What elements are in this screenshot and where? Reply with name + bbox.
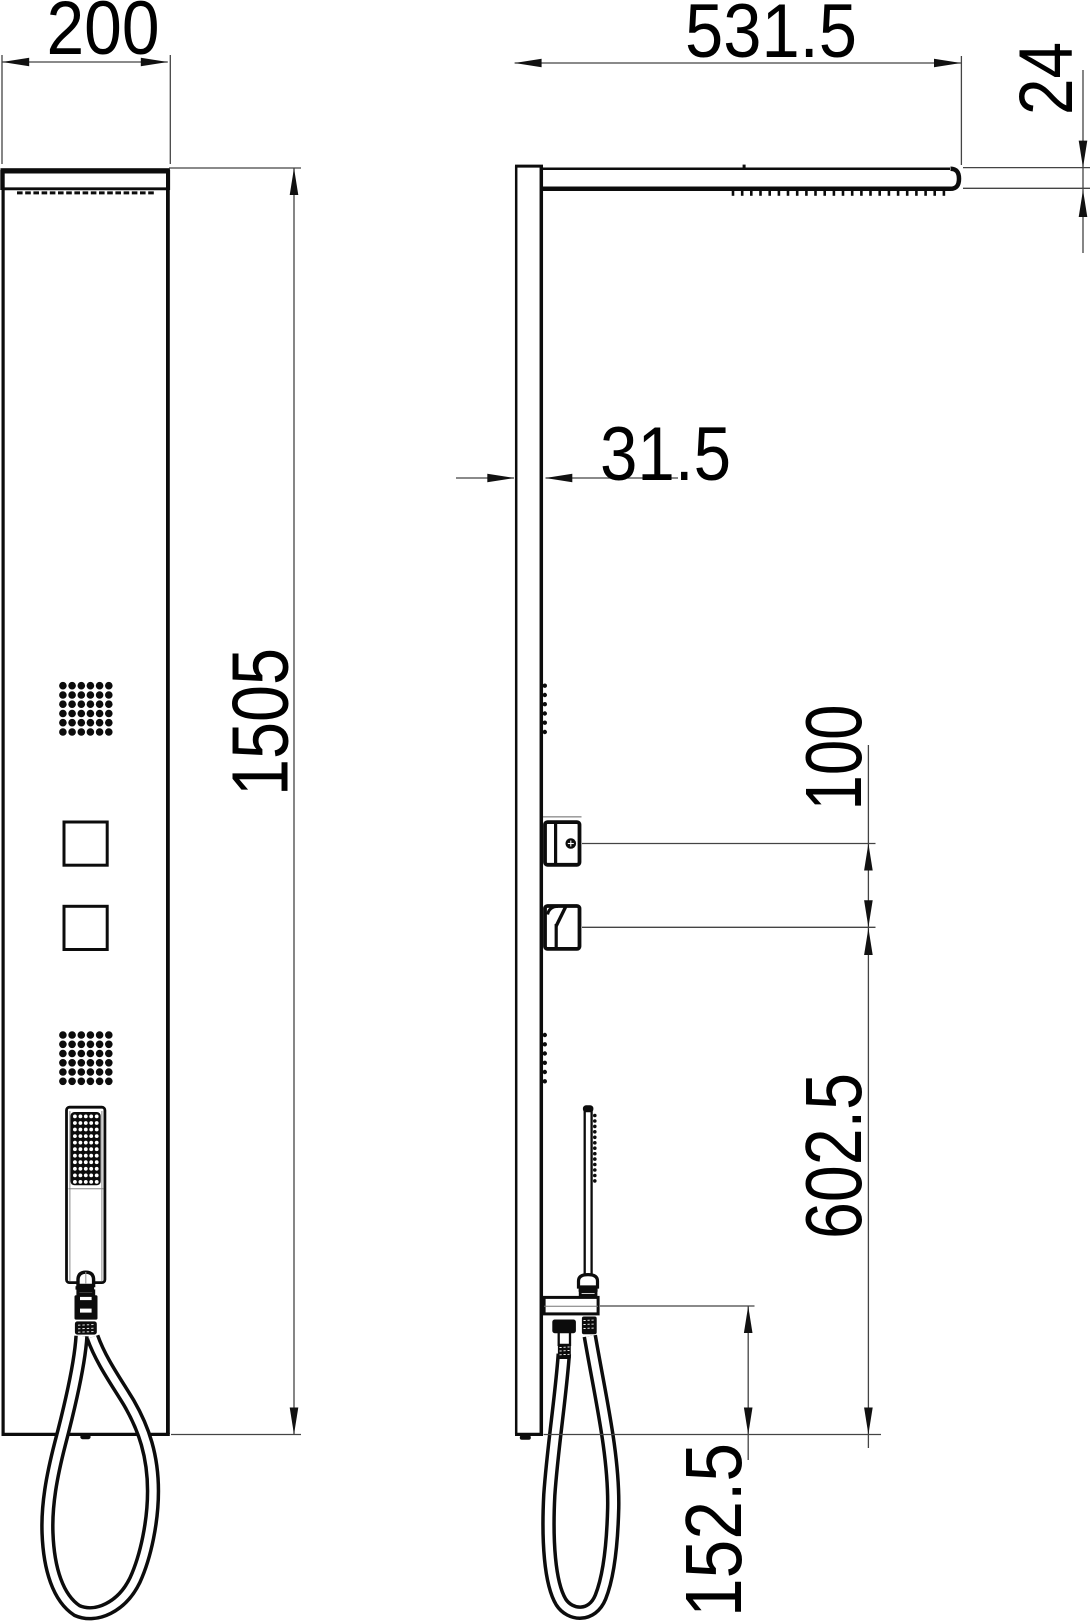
svg-text:24: 24	[1004, 42, 1089, 115]
svg-text:1505: 1505	[216, 648, 305, 796]
svg-text:31.5: 31.5	[600, 412, 731, 497]
svg-text:152.5: 152.5	[669, 1443, 758, 1617]
svg-text:531.5: 531.5	[685, 0, 857, 74]
svg-text:100: 100	[789, 705, 878, 811]
svg-text:602.5: 602.5	[789, 1073, 878, 1239]
svg-text:200: 200	[47, 0, 160, 71]
